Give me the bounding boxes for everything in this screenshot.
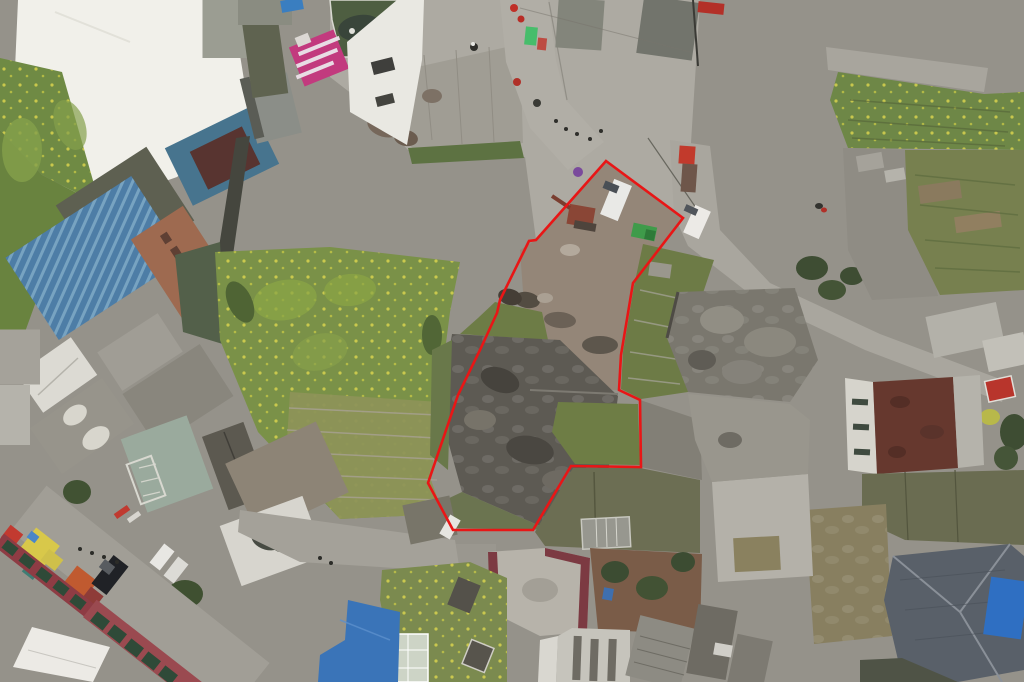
- maroon-roof-spot: [890, 396, 910, 408]
- maroon-roof-spot: [920, 425, 944, 439]
- aerial-photo-scene: [0, 0, 1024, 682]
- pedestrian: [329, 561, 333, 565]
- window-strip: [607, 639, 616, 681]
- tree: [601, 561, 629, 583]
- maroon-roof-spot: [888, 446, 906, 458]
- dirt-light-debris: [537, 293, 553, 303]
- tan-roof-mottle: [805, 504, 892, 644]
- dirt-light-debris: [560, 244, 580, 256]
- gray-roof-shadow: [688, 350, 716, 370]
- debris-pile: [422, 89, 442, 103]
- pedestrian: [554, 119, 558, 123]
- red-sign-blur: [537, 38, 547, 51]
- red-truck-cab: [678, 145, 695, 164]
- pedestrian: [318, 556, 322, 560]
- skylight-slit: [854, 449, 870, 456]
- red-truck-bed: [681, 164, 698, 193]
- tree: [63, 480, 91, 504]
- tree: [636, 576, 668, 600]
- field-ul-light-patch: [2, 118, 42, 182]
- scene-layers: [0, 0, 1024, 682]
- motorbike-rider: [821, 208, 827, 213]
- maroon-bldg-right-strip: [953, 375, 984, 468]
- pedestrian: [599, 129, 603, 133]
- rubble-texture: [522, 578, 558, 602]
- green-sign-blur: [524, 26, 538, 45]
- dirt-dark-patch: [582, 336, 618, 354]
- window-strip: [589, 639, 598, 681]
- skylight-slit: [853, 424, 869, 431]
- scooter: [533, 99, 541, 107]
- tree: [994, 446, 1018, 470]
- pedestrian: [564, 127, 568, 131]
- pedestrian: [575, 132, 579, 136]
- pedestrian: [90, 551, 94, 555]
- courtyard-debris: [718, 432, 742, 448]
- white-facade: [538, 636, 558, 682]
- motorbike: [815, 203, 823, 209]
- purple-umbrella: [573, 167, 583, 177]
- old-roof-light: [464, 410, 496, 430]
- window-strip: [572, 636, 582, 680]
- skylight-slit: [852, 399, 868, 406]
- aerial-photo-stage: [0, 0, 1024, 682]
- tree: [818, 280, 846, 300]
- tree: [671, 552, 695, 572]
- yellow-bush: [980, 409, 1000, 425]
- red-car-roof: [510, 4, 518, 12]
- gray-roof-blotch: [700, 306, 744, 334]
- red-scooter: [513, 78, 521, 86]
- scooter-helmet: [471, 42, 475, 46]
- garden-statue: [349, 28, 355, 34]
- gray-roof-blotch: [722, 360, 762, 384]
- tree: [796, 256, 828, 280]
- left-edge-roof: [0, 385, 30, 445]
- red-car-roof: [518, 16, 525, 23]
- left-edge-roof: [0, 330, 40, 385]
- building-top-right2: [636, 0, 700, 61]
- pedestrian: [588, 137, 592, 141]
- pedestrian: [78, 547, 82, 551]
- gray-roof-blotch: [744, 327, 796, 357]
- building-top-right1: [555, 0, 604, 51]
- maroon-flat-roof: [873, 377, 958, 474]
- mossy-square: [733, 536, 781, 572]
- green-car-shade: [644, 229, 656, 241]
- pedestrian: [102, 555, 106, 559]
- pedestrian: [115, 560, 119, 564]
- blue-tarp-small: [602, 587, 614, 601]
